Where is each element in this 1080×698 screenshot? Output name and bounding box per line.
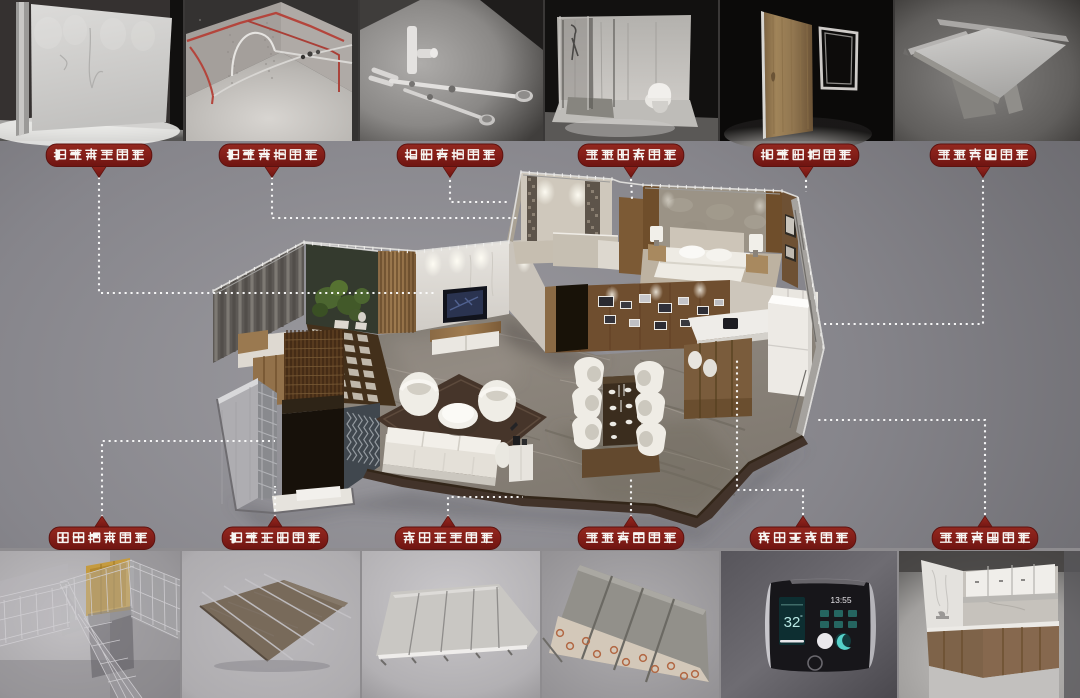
svg-text:13:55: 13:55: [830, 595, 852, 605]
svg-text:°: °: [800, 614, 803, 622]
svg-text:32: 32: [784, 614, 801, 631]
